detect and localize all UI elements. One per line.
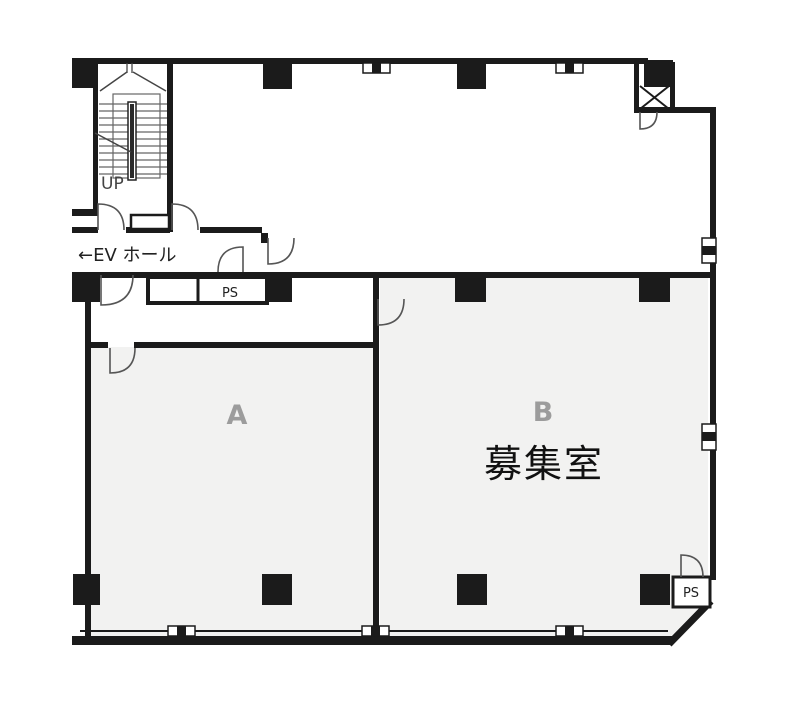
wall-shaft-bottom [634,107,716,113]
door-stair-right [172,204,198,230]
column [644,60,673,87]
wall-evhall-top-3 [200,227,262,233]
column [72,61,98,88]
stair-chamfer-right [133,72,166,91]
column [72,272,100,302]
wall-room-a-top-1 [85,342,108,348]
wall-evhall-top-1 [72,227,98,233]
wall-right [710,110,716,580]
door-stair-left [98,204,124,230]
floorplan-page: UP ←EV ホール PS PS A B 募集室 [0,0,787,707]
room-a-area [90,347,373,636]
window-right-2-core [702,432,716,441]
column [639,272,670,302]
stair-rail-core [130,104,134,178]
door-ps-mid [218,247,243,272]
ps-corner-label: PS [683,586,699,601]
window-right-1-core [702,246,716,255]
window-bottom-3-core [565,626,574,636]
ev-hall-label: ←EV ホール [78,245,177,266]
door-unit-a-entry [101,275,133,305]
window-bottom-2-core [371,626,380,636]
column [457,574,487,605]
floorplan-svg: UP ←EV ホール PS PS A B 募集室 [0,0,787,707]
column [640,574,670,605]
room-fills [90,278,708,640]
wall-bottom-thick [72,636,672,645]
wall-room-a-top-2 [134,342,378,348]
door-evhall-right [268,238,294,264]
room-b-label: B [533,397,554,428]
window-bottom-1-core [177,626,186,636]
wall-evhall-step [261,233,268,243]
column [457,61,486,89]
column [73,574,100,605]
column [455,272,486,302]
stair-door-sill [131,215,169,229]
window-top-1-core [372,63,381,73]
door-shaft [640,112,657,129]
stair-chamfer-left [100,72,127,91]
wall-divider-a-b [373,278,379,644]
vacancy-label: 募集室 [484,442,604,486]
ps-closet-mid [148,277,267,303]
ps-mid-label: PS [222,286,238,301]
stairs-up-label: UP [101,174,124,194]
window-top-2-core [565,63,574,73]
room-a-label: A [227,400,248,431]
column [263,61,292,89]
column [262,574,292,605]
wall-shaft-left [634,62,639,112]
wall-stair-stub [72,209,98,216]
